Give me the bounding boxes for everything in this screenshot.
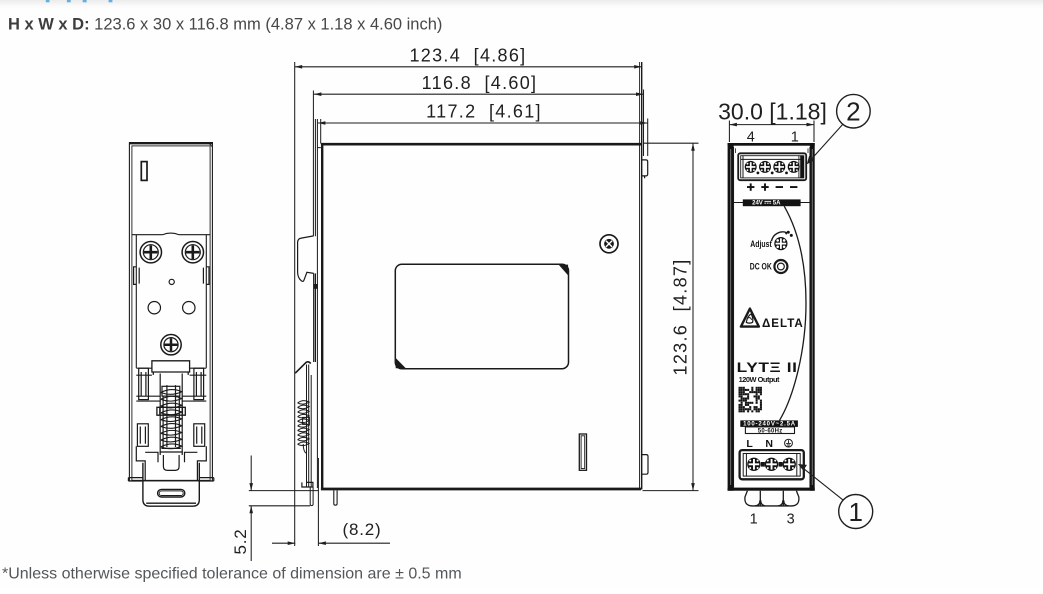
- svg-text:ΔELTA: ΔELTA: [762, 317, 803, 330]
- svg-text:LYTΞ II: LYTΞ II: [737, 360, 798, 376]
- svg-text:24V: 24V: [752, 201, 763, 207]
- svg-text:123.6 [4.87]: 123.6 [4.87]: [671, 259, 691, 376]
- svg-text:5.2: 5.2: [231, 528, 250, 554]
- svg-text:5A: 5A: [773, 201, 781, 207]
- svg-text:117.2 [4.61]: 117.2 [4.61]: [426, 101, 542, 121]
- svg-text:30.0 [1.18]: 30.0 [1.18]: [718, 99, 827, 125]
- svg-text:2: 2: [846, 97, 860, 127]
- svg-text:3: 3: [787, 511, 795, 527]
- svg-text:L: L: [746, 438, 753, 450]
- svg-text:H x W x D: 123.6 x 30 x 116.8: H x W x D: 123.6 x 30 x 116.8 mm (4.87 x…: [8, 16, 442, 34]
- svg-text:123.4 [4.86]: 123.4 [4.86]: [410, 46, 527, 66]
- svg-text:1: 1: [848, 497, 862, 527]
- svg-text:N: N: [765, 438, 773, 450]
- svg-text:Adjust: Adjust: [750, 239, 772, 249]
- svg-text:50-60Hz: 50-60Hz: [758, 428, 783, 434]
- svg-text:116.8 [4.60]: 116.8 [4.60]: [422, 73, 538, 93]
- svg-text:DC OK: DC OK: [750, 262, 772, 272]
- svg-text:1: 1: [791, 129, 799, 145]
- svg-text:4: 4: [747, 129, 755, 145]
- svg-text:(8.2): (8.2): [343, 520, 382, 539]
- svg-text:*Unless otherwise specified to: *Unless otherwise specified tolerance of…: [2, 566, 462, 583]
- svg-text:120W Output: 120W Output: [739, 375, 780, 384]
- svg-text:1: 1: [750, 511, 758, 527]
